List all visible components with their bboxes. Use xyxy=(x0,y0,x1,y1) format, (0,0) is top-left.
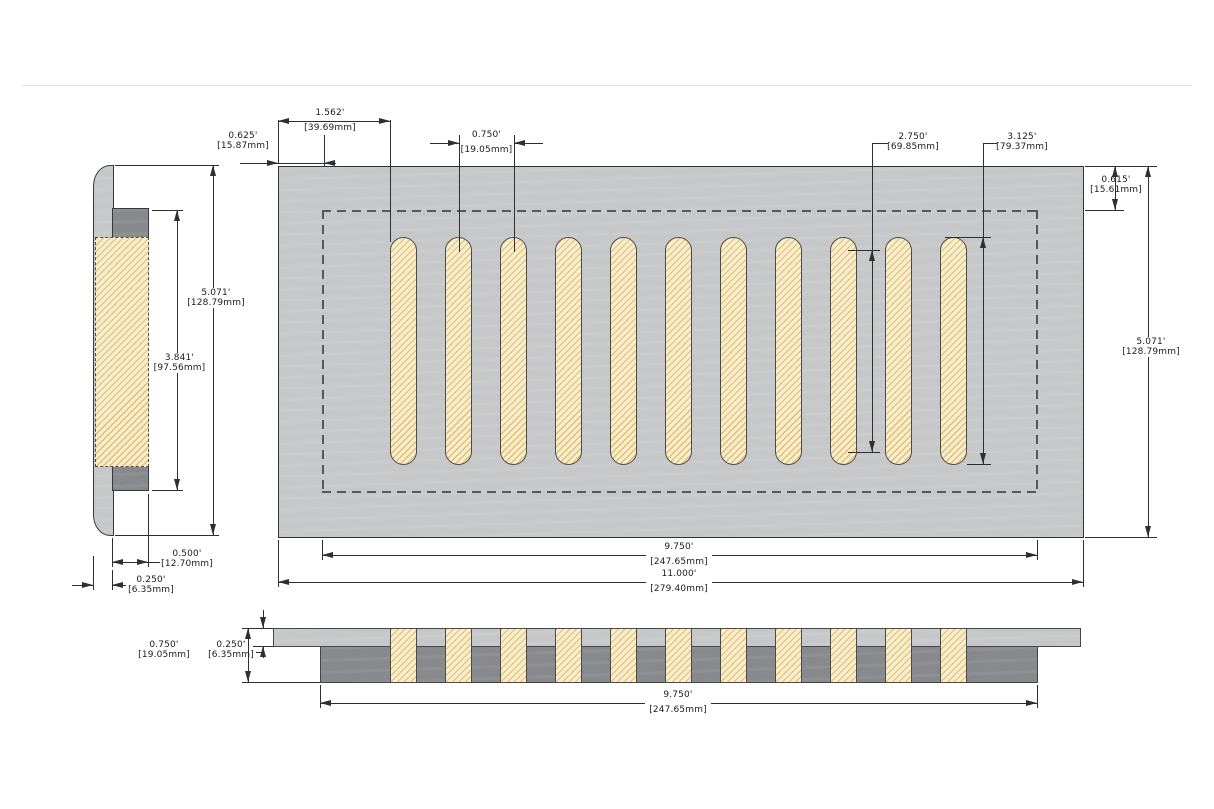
dimension-line xyxy=(177,210,178,490)
dim-mm: [69.85mm] xyxy=(886,142,940,152)
dim-label-slot-straight-length: 2.750' [69.85mm] xyxy=(886,132,940,152)
dim-label-side-body-depth: 0.500' [12.70mm] xyxy=(160,549,214,569)
dim-inches: 0.625' xyxy=(212,131,274,141)
arrowhead xyxy=(112,582,123,588)
dim-inches: 0.750' xyxy=(136,640,192,650)
dim-inches: 0.750' xyxy=(456,130,517,140)
arrowhead xyxy=(1112,199,1118,210)
arrowhead xyxy=(1145,526,1151,537)
dim-mm: [39.69mm] xyxy=(300,123,360,133)
extension-line xyxy=(242,682,320,683)
dimension-line xyxy=(213,165,214,535)
dim-label-section-body-width: 9.750' [247.65mm] xyxy=(645,690,711,715)
vent-slot xyxy=(885,237,912,465)
technical-drawing-canvas: 1.562' [39.69mm] 0.625' [15.87mm] 0.750'… xyxy=(0,0,1214,809)
vent-slot xyxy=(830,237,857,465)
extension-line xyxy=(1085,210,1124,211)
side-view-slot-section xyxy=(95,237,149,467)
dim-inches: 0.615' xyxy=(1087,175,1145,185)
extension-line xyxy=(115,535,219,536)
arrowhead xyxy=(112,559,123,565)
dim-inches: 2.750' xyxy=(886,132,940,142)
extension-line xyxy=(1037,540,1038,560)
vent-slot xyxy=(720,237,747,465)
hidden-body-outline-bottom xyxy=(322,491,1037,493)
arrowhead xyxy=(869,250,875,261)
vent-slot xyxy=(500,237,527,465)
arrowhead xyxy=(267,160,278,166)
vent-slot-section xyxy=(940,628,967,683)
hidden-body-outline-top xyxy=(322,210,1037,212)
hidden-body-outline-left xyxy=(322,210,324,492)
arrowhead xyxy=(210,165,216,176)
dim-mm: [79.37mm] xyxy=(994,142,1050,152)
arrowhead xyxy=(210,524,216,535)
dim-label-overall-width: 11.000' [279.40mm] xyxy=(646,569,712,594)
arrowhead xyxy=(260,617,266,628)
dim-label-front-body-width: 9.750' [247.65mm] xyxy=(646,542,712,567)
arrowhead xyxy=(137,559,148,565)
arrowhead xyxy=(1026,552,1037,558)
dim-inches: 3.841' xyxy=(151,353,208,363)
dim-label-slot-pitch: 0.750' [19.05mm] xyxy=(456,130,517,155)
arrowhead xyxy=(82,582,93,588)
dim-inches: 0.250' xyxy=(204,640,258,650)
dim-mm: [247.65mm] xyxy=(645,705,711,715)
extension-line xyxy=(1083,540,1084,587)
dim-mm: [15.87mm] xyxy=(212,141,274,151)
dim-mm: [279.40mm] xyxy=(646,584,712,594)
vent-slot-section xyxy=(390,628,417,683)
extension-line xyxy=(848,452,880,453)
hidden-body-outline-right xyxy=(1036,210,1038,492)
dim-label-side-flange-thickness: 0.250' [6.35mm] xyxy=(125,575,177,595)
vent-slot xyxy=(390,237,417,465)
vent-slot-section xyxy=(830,628,857,683)
arrowhead xyxy=(245,628,251,639)
dim-inches: 0.500' xyxy=(160,549,214,559)
vent-slot-section xyxy=(610,628,637,683)
vent-slot xyxy=(775,237,802,465)
dim-label-side-body-height: 3.841' [97.56mm] xyxy=(149,353,210,373)
arrowhead xyxy=(320,700,331,706)
extension-line xyxy=(93,556,94,590)
vent-slot-section xyxy=(885,628,912,683)
dim-inches: 5.071' xyxy=(187,288,245,298)
dim-inches: 3.125' xyxy=(994,132,1050,142)
dim-label-body-left-offset: 0.625' [15.87mm] xyxy=(212,131,274,151)
arrowhead xyxy=(980,237,986,248)
extension-line xyxy=(1085,537,1157,538)
dimension-line xyxy=(240,163,336,164)
dim-label-side-height: 5.071' [128.79mm] xyxy=(185,288,247,308)
dim-inches: 9.750' xyxy=(646,542,712,552)
dimension-line xyxy=(872,143,873,452)
vent-slot xyxy=(940,237,967,465)
vent-slot xyxy=(665,237,692,465)
dim-inches: 1.562' xyxy=(300,108,360,118)
dimension-line xyxy=(983,143,984,464)
vent-slot-section xyxy=(445,628,472,683)
extension-line xyxy=(967,464,991,465)
dim-mm: [19.05mm] xyxy=(136,650,192,660)
arrowhead xyxy=(278,579,289,585)
vent-slot-section xyxy=(720,628,747,683)
dim-inches: 9.750' xyxy=(645,690,711,700)
dim-mm: [97.56mm] xyxy=(151,363,208,373)
arrowhead xyxy=(1072,579,1083,585)
dim-mm: [19.05mm] xyxy=(456,145,517,155)
arrowhead xyxy=(324,160,335,166)
vent-slot-section xyxy=(665,628,692,683)
arrowhead xyxy=(174,210,180,221)
extension-line xyxy=(115,165,219,166)
vent-slot-section xyxy=(775,628,802,683)
dim-mm: [6.35mm] xyxy=(204,650,258,660)
vent-slot xyxy=(445,237,472,465)
vent-slot-section xyxy=(555,628,582,683)
dim-label-slot-left-offset: 1.562' [39.69mm] xyxy=(300,108,360,133)
vent-slot-section xyxy=(500,628,527,683)
arrowhead xyxy=(174,479,180,490)
extension-line xyxy=(324,135,325,166)
extension-line xyxy=(1037,685,1038,708)
arrowhead xyxy=(980,453,986,464)
arrowhead xyxy=(245,671,251,682)
dim-label-front-height: 5.071' [128.79mm] xyxy=(1120,337,1182,357)
dim-mm: [128.79mm] xyxy=(187,298,245,308)
extension-line xyxy=(390,120,391,242)
dim-mm: [128.79mm] xyxy=(1122,347,1180,357)
dim-label-body-top-offset: 0.615' [15.61mm] xyxy=(1087,175,1145,195)
dim-label-slot-length: 3.125' [79.37mm] xyxy=(994,132,1050,152)
dim-mm: [12.70mm] xyxy=(160,559,214,569)
arrowhead xyxy=(379,118,390,124)
vent-slot xyxy=(610,237,637,465)
arrowhead xyxy=(869,441,875,452)
extension-line xyxy=(148,494,149,567)
dim-label-section-total-thickness: 0.750' [19.05mm] xyxy=(136,640,192,660)
dim-inches: 0.250' xyxy=(125,575,177,585)
dim-mm: [15.61mm] xyxy=(1087,185,1145,195)
arrowhead xyxy=(322,552,333,558)
extension-line xyxy=(152,490,183,491)
vent-slot xyxy=(555,237,582,465)
dim-label-section-flange-thickness: 0.250' [6.35mm] xyxy=(204,640,258,660)
extension-line xyxy=(278,120,279,164)
dim-mm: [247.65mm] xyxy=(646,557,712,567)
dim-inches: 11.000' xyxy=(646,569,712,579)
page-divider xyxy=(22,85,1192,86)
arrowhead xyxy=(1026,700,1037,706)
dim-inches: 5.071' xyxy=(1122,337,1180,347)
arrowhead xyxy=(278,118,289,124)
dim-mm: [6.35mm] xyxy=(125,585,177,595)
arrowhead xyxy=(1145,166,1151,177)
extension-line xyxy=(848,250,880,251)
